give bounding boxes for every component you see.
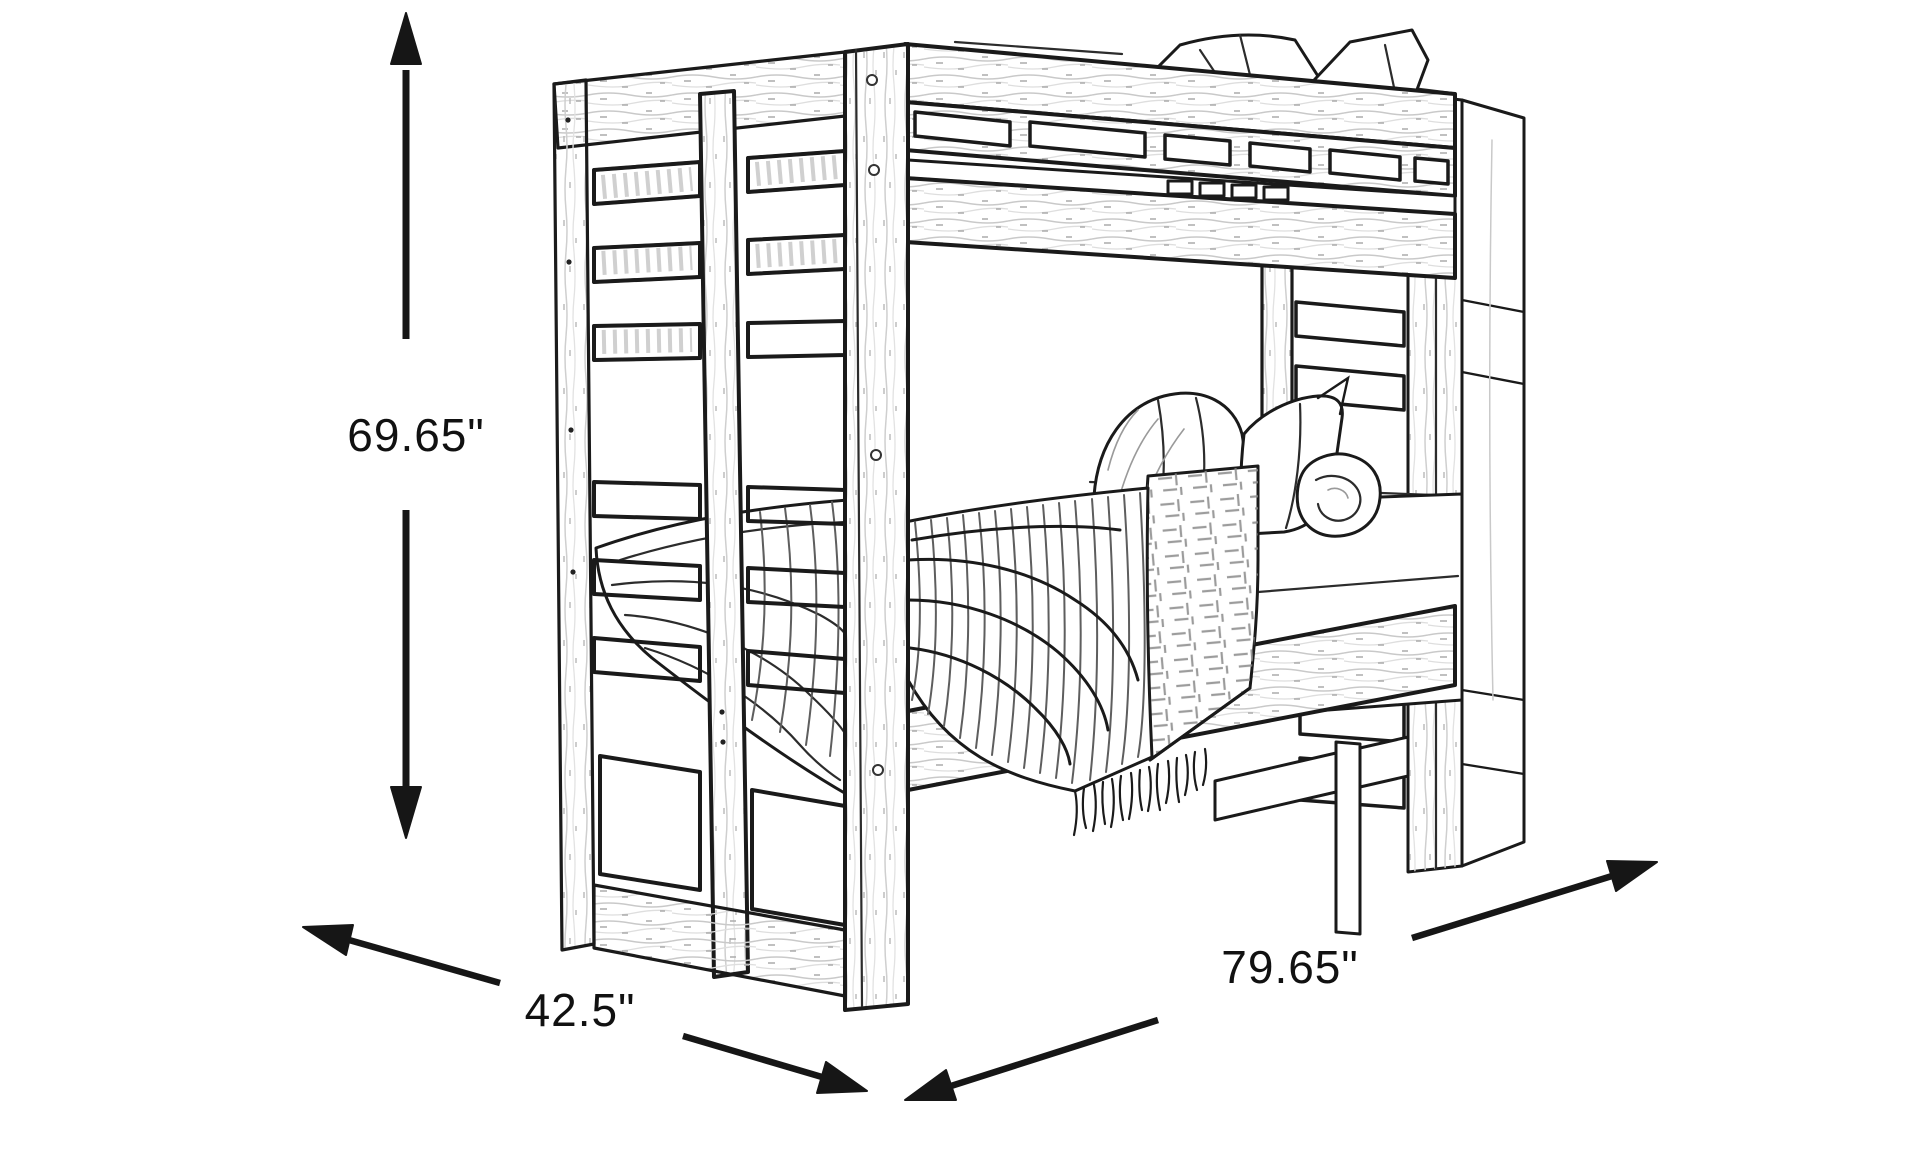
dimension-diagram: 69.65" 42.5" 79.65": [0, 0, 1920, 1173]
bed-left-end-ladder-panel: [554, 44, 908, 1010]
height-dimension-label: 69.65": [347, 408, 484, 462]
bunk-bed-illustration: [0, 0, 1920, 1173]
depth-dimension-label: 42.5": [525, 983, 636, 1037]
length-dimension-label: 79.65": [1221, 940, 1358, 994]
